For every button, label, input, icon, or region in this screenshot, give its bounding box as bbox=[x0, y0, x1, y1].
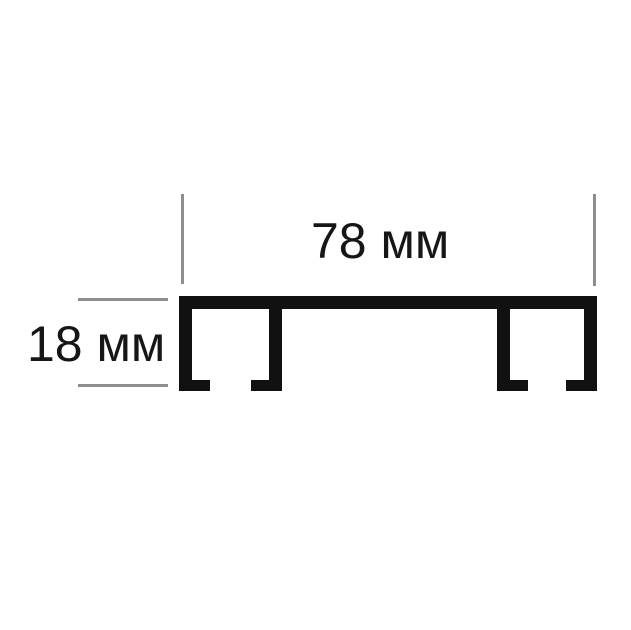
width-dimension-label: 78 мм bbox=[311, 216, 449, 266]
profile-left-outer-foot bbox=[179, 380, 210, 391]
profile-top-wall bbox=[179, 296, 597, 309]
profile-right-inner-foot bbox=[497, 380, 528, 391]
profile-left-inner-leg bbox=[269, 296, 282, 391]
height-dimension-label: 18 мм bbox=[27, 319, 165, 369]
height-extension-line-bottom bbox=[78, 384, 168, 387]
profile-right-outer-leg bbox=[584, 296, 597, 391]
profile-left-inner-foot bbox=[251, 380, 282, 391]
profile-dimension-diagram: 78 мм 18 мм bbox=[0, 0, 631, 630]
width-extension-line-left bbox=[181, 194, 184, 284]
profile-right-outer-foot bbox=[566, 380, 597, 391]
height-extension-line-top bbox=[78, 298, 168, 301]
width-extension-line-right bbox=[593, 194, 596, 286]
profile-left-outer-leg bbox=[179, 296, 192, 391]
profile-right-inner-leg bbox=[497, 296, 510, 391]
